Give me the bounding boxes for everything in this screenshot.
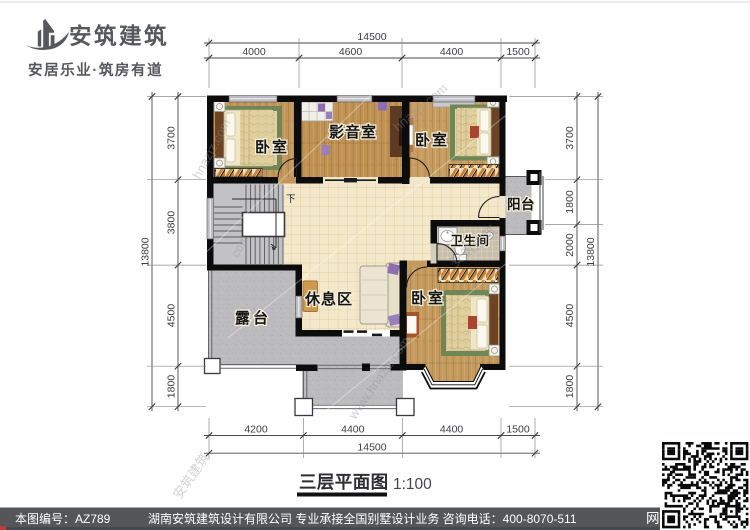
svg-text:4400: 4400: [440, 424, 464, 436]
svg-text:三层平面图: 三层平面图: [299, 472, 389, 492]
svg-text:本图编号：AZ789: 本图编号：AZ789: [15, 511, 111, 526]
svg-text:卧室: 卧室: [255, 138, 289, 156]
svg-text:阳台: 阳台: [507, 196, 535, 212]
svg-text:4500: 4500: [564, 304, 576, 328]
svg-text:1800: 1800: [564, 375, 576, 399]
svg-text:安筑建筑: 安筑建筑: [69, 23, 169, 49]
svg-text:4000: 4000: [242, 46, 266, 58]
svg-text:1:100: 1:100: [393, 476, 432, 493]
svg-text:下: 下: [286, 194, 296, 205]
svg-text:4200: 4200: [244, 424, 268, 436]
svg-text:3800: 3800: [166, 211, 178, 235]
svg-text:3700: 3700: [564, 126, 576, 150]
svg-text:4400: 4400: [440, 46, 464, 58]
svg-text:卧室: 卧室: [415, 131, 449, 149]
svg-text:休息区: 休息区: [304, 290, 353, 308]
svg-text:1800: 1800: [564, 190, 576, 214]
svg-text:1500: 1500: [506, 46, 530, 58]
svg-text:3700: 3700: [166, 126, 178, 150]
svg-text:14500: 14500: [357, 442, 386, 454]
svg-text:4500: 4500: [166, 304, 178, 328]
svg-text:影音室: 影音室: [329, 123, 377, 141]
svg-text:安筑建筑: 安筑建筑: [170, 451, 212, 502]
svg-text:2000: 2000: [564, 233, 576, 257]
svg-text:14500: 14500: [357, 31, 386, 43]
svg-text:卧室: 卧室: [411, 289, 445, 307]
svg-text:安居乐业·筑房有道: 安居乐业·筑房有道: [28, 61, 163, 79]
svg-text:1500: 1500: [506, 424, 530, 436]
svg-text:4600: 4600: [339, 46, 363, 58]
svg-text:4400: 4400: [341, 424, 365, 436]
svg-text:13800: 13800: [140, 237, 152, 266]
svg-text:13800: 13800: [585, 237, 597, 266]
svg-text:1800: 1800: [166, 375, 178, 399]
svg-text:网: 网: [646, 511, 660, 526]
svg-text:湖南安筑建筑设计有限公司 专业承接全国别墅设计业务 咨询电话: 湖南安筑建筑设计有限公司 专业承接全国别墅设计业务 咨询电话：400-8070-…: [148, 511, 577, 526]
